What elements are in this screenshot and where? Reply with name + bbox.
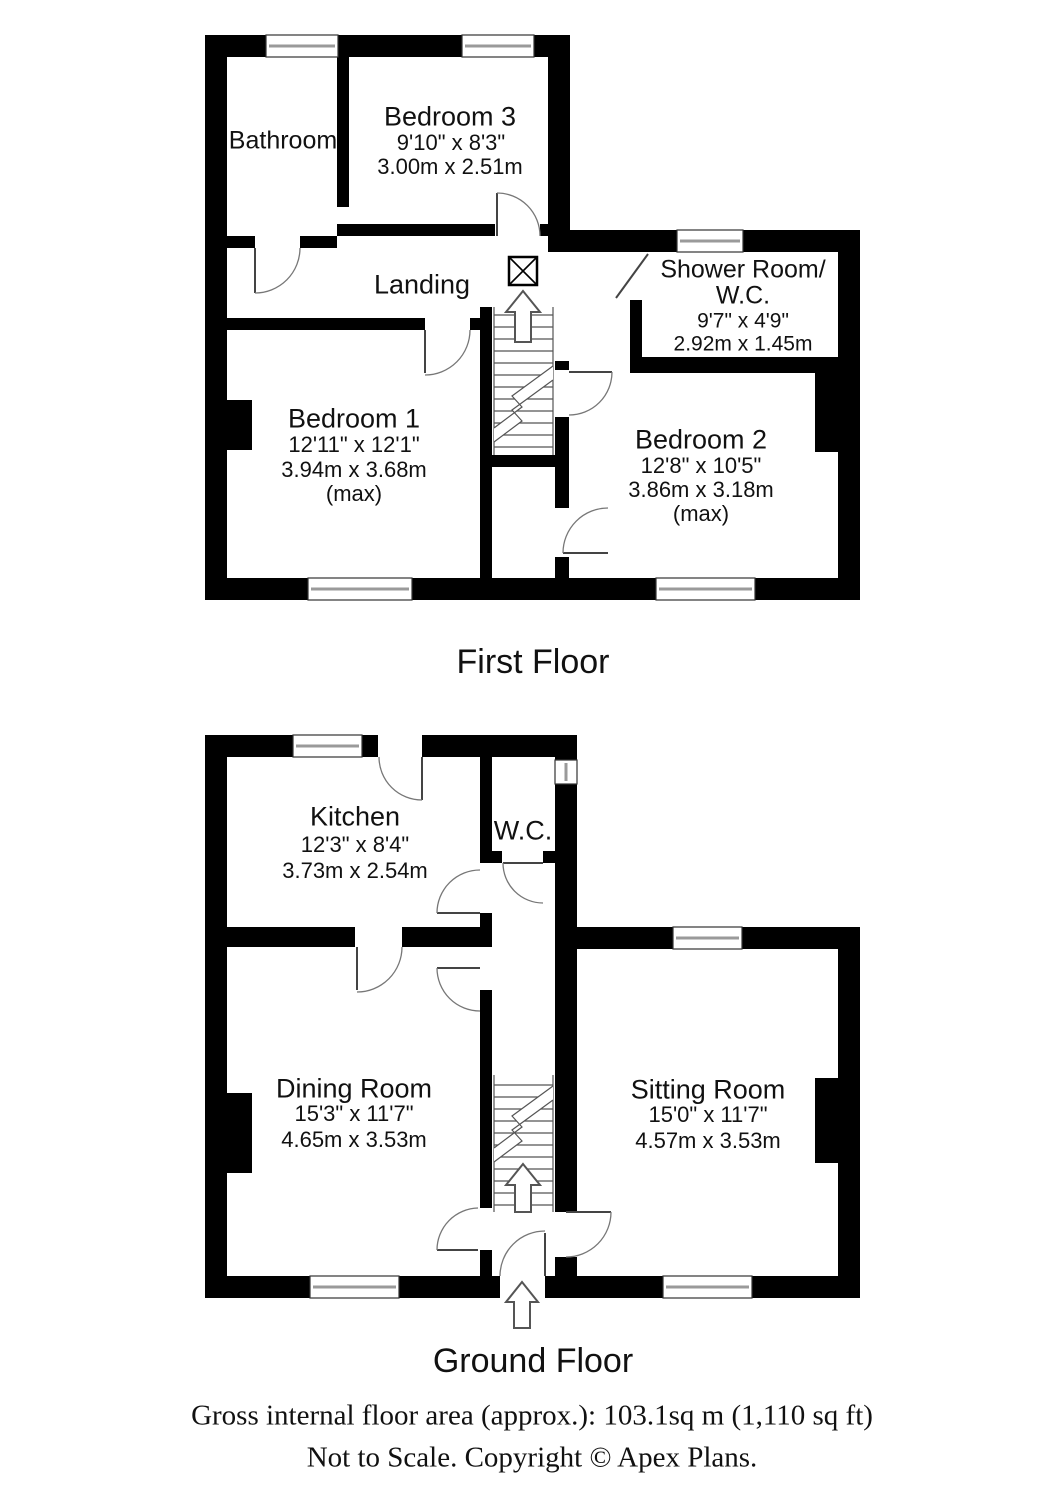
window (677, 230, 743, 252)
door-store (563, 508, 608, 553)
label-kitchen-ft: 12'3" x 8'4" (301, 834, 409, 856)
label-bedroom2-m: 3.86m x 3.18m (628, 479, 774, 501)
door-bedroom1 (425, 330, 470, 375)
door-dining (437, 1208, 478, 1250)
door-hall-dining (437, 968, 480, 1011)
label-shower-m: 2.92m x 1.45m (674, 334, 813, 355)
door-kitchen-hall (437, 870, 480, 913)
door-kitchen-dining (357, 947, 402, 992)
stairs-up-arrow (506, 291, 540, 342)
label-bedroom1-m: 3.94m x 3.68m (281, 459, 427, 481)
floorplan-page: Bathroom Bedroom 3 9'10" x 8'3" 3.00m x … (0, 0, 1060, 1500)
label-sitting-name: Sitting Room (631, 1077, 786, 1104)
label-shower-name2: W.C. (716, 284, 770, 309)
label-dining-name: Dining Room (276, 1076, 432, 1103)
label-bedroom1-ft: 12'11" x 12'1" (288, 434, 419, 456)
window (555, 760, 577, 784)
door-bedroom2 (569, 372, 612, 415)
label-shower-name1: Shower Room/ (660, 258, 825, 283)
stairs-ground-floor (494, 1075, 553, 1212)
label-shower-ft: 9'7" x 4'9" (697, 311, 789, 332)
door-shower-room (616, 254, 648, 298)
label-bedroom3-m: 3.00m x 2.51m (377, 156, 523, 178)
label-kitchen-name: Kitchen (310, 804, 400, 831)
label-bedroom2-max: (max) (673, 503, 729, 525)
window (266, 35, 338, 57)
label-kitchen-m: 3.73m x 2.54m (282, 860, 428, 882)
window (462, 35, 534, 57)
loft-hatch-icon (509, 257, 537, 285)
first-floor-title: First Floor (457, 645, 610, 679)
label-bedroom2-ft: 12'8" x 10'5" (641, 455, 762, 477)
label-bedroom2-name: Bedroom 2 (635, 427, 767, 454)
window (663, 1276, 752, 1298)
window (673, 927, 742, 949)
label-bathroom: Bathroom (229, 129, 337, 154)
window (293, 735, 362, 757)
footer-area-text: Gross internal floor area (approx.): 103… (191, 1402, 873, 1431)
label-dining-m: 4.65m x 3.53m (281, 1129, 427, 1151)
label-sitting-m: 4.57m x 3.53m (635, 1130, 781, 1152)
footer-copyright-text: Not to Scale. Copyright © Apex Plans. (307, 1444, 758, 1473)
entrance-arrow (506, 1282, 538, 1328)
window (310, 1276, 399, 1298)
door-bedroom3 (497, 193, 540, 236)
label-dining-ft: 15'3" x 11'7" (294, 1103, 413, 1125)
door-back (379, 757, 422, 800)
label-wc: W.C. (494, 818, 553, 845)
label-landing: Landing (374, 272, 470, 299)
stairs-first-floor (494, 291, 553, 455)
label-bedroom1-name: Bedroom 1 (288, 406, 420, 433)
door-front (500, 1231, 545, 1276)
door-bathroom (255, 248, 300, 293)
label-bedroom3-ft: 9'10" x 8'3" (397, 132, 505, 154)
label-sitting-ft: 15'0" x 11'7" (648, 1104, 767, 1126)
window (656, 578, 755, 600)
door-wc (503, 863, 543, 903)
window (308, 578, 412, 600)
ground-floor-title: Ground Floor (433, 1344, 633, 1378)
door-sitting (566, 1212, 611, 1257)
label-bedroom1-max: (max) (326, 483, 382, 505)
label-bedroom3-name: Bedroom 3 (384, 104, 516, 131)
floorplan-drawing (0, 0, 1060, 1500)
